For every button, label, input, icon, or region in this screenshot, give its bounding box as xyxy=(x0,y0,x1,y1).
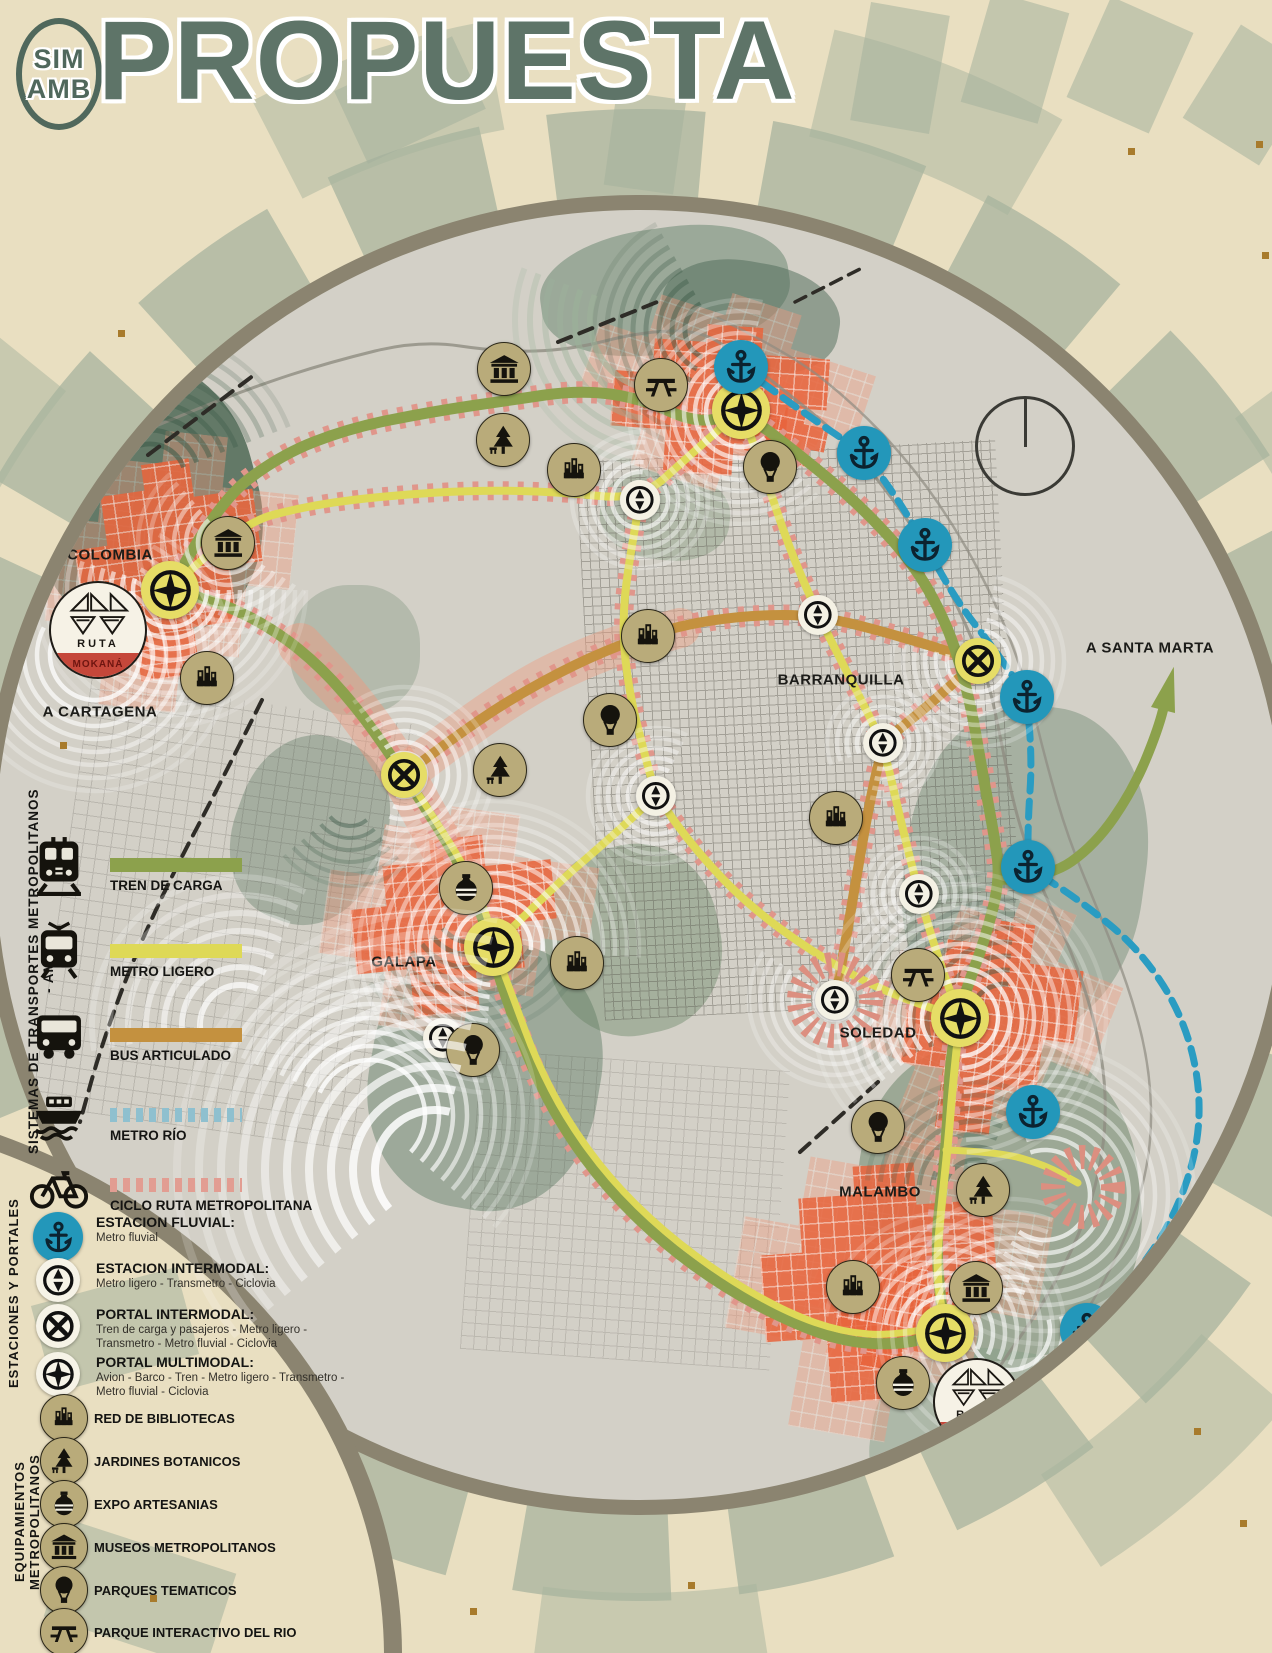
estacion-fluvial-icon xyxy=(1008,847,1048,887)
city-label: GALAPA xyxy=(371,954,436,971)
balloon-icon xyxy=(859,1108,897,1146)
mokana-pattern-icon xyxy=(61,591,134,640)
city-label: A SANTA MARTA xyxy=(1086,640,1214,657)
mokana-mokana-text: MOKANÁ xyxy=(73,659,124,670)
estacion-intermodal-marker xyxy=(620,480,660,520)
vase-icon xyxy=(447,869,485,907)
expo-marker xyxy=(439,861,493,915)
books-icon xyxy=(558,944,596,982)
estacion-fluvial-marker xyxy=(1001,840,1055,894)
balloon-marker xyxy=(446,1023,500,1077)
portal-intermodal-icon xyxy=(387,758,421,792)
decorative-dot xyxy=(1194,1428,1201,1435)
estacion-intermodal-marker xyxy=(798,595,838,635)
estacion-fluvial-icon xyxy=(1067,1310,1107,1350)
estacion-fluvial-icon xyxy=(844,433,884,473)
mokana-ruta-text: RUTA xyxy=(956,1410,998,1421)
portal-intermodal-icon xyxy=(961,644,995,678)
biblioteca-marker xyxy=(180,651,234,705)
picnic-icon xyxy=(642,366,680,404)
ruta-mokana-logo: RUTAMOKANÁ xyxy=(933,1358,1021,1446)
sim-amb-logo: SIM AMB xyxy=(16,18,102,130)
portal-multimodal-marker xyxy=(931,989,989,1047)
balloon-marker xyxy=(583,693,637,747)
picnic-icon xyxy=(899,956,937,994)
estacion-intermodal-marker xyxy=(815,980,855,1020)
books-icon xyxy=(555,451,593,489)
books-icon xyxy=(629,617,667,655)
decorative-dot xyxy=(118,330,125,337)
mokana-pattern-icon xyxy=(944,1367,1010,1411)
museo-marker xyxy=(949,1261,1003,1315)
estacion-fluvial-marker xyxy=(837,426,891,480)
portal-multimodal-icon xyxy=(149,569,192,612)
propuesta-poster: PUERTO COLOMBIAA CARTAGENABARRANQUILLAGA… xyxy=(0,0,1272,1653)
books-icon xyxy=(817,799,855,837)
estacion-fluvial-marker xyxy=(1000,670,1054,724)
jardin-marker xyxy=(476,413,530,467)
estacion-fluvial-icon xyxy=(1013,1092,1053,1132)
estacion-fluvial-icon xyxy=(1007,677,1047,717)
logo-bottom-text: AMB xyxy=(27,74,92,104)
museo-marker xyxy=(477,342,531,396)
ruta-mokana-logo: RUTAMOKANÁ xyxy=(49,581,147,679)
estacion-fluvial-icon xyxy=(721,347,761,387)
biblioteca-marker xyxy=(809,791,863,845)
tree-icon xyxy=(481,751,519,789)
books-icon xyxy=(188,659,226,697)
decorative-dot xyxy=(688,1582,695,1589)
estacion-fluvial-marker xyxy=(1006,1085,1060,1139)
estacion-intermodal-marker xyxy=(636,776,676,816)
portal-multimodal-marker xyxy=(464,918,522,976)
picnic-marker xyxy=(634,358,688,412)
museo-marker xyxy=(201,516,255,570)
balloon-marker xyxy=(743,440,797,494)
city-label: A CARTAGENA xyxy=(43,704,158,721)
estacion-intermodal-icon xyxy=(820,985,850,1015)
expo-marker xyxy=(876,1356,930,1410)
jardin-marker xyxy=(473,743,527,797)
biblioteca-marker xyxy=(550,936,604,990)
page-title: PROPUESTA xyxy=(98,0,796,125)
estacion-intermodal-icon xyxy=(803,600,833,630)
balloon-icon xyxy=(454,1031,492,1069)
biblioteca-marker xyxy=(621,609,675,663)
estacion-fluvial-icon xyxy=(905,525,945,565)
estacion-intermodal-marker xyxy=(863,723,903,763)
decorative-dot xyxy=(60,742,67,749)
museum-icon xyxy=(957,1269,995,1307)
mokana-mokana-text: MOKANÁ xyxy=(952,1428,1003,1439)
mokana-ruta-text: RUTA xyxy=(77,639,119,650)
portal-multimodal-marker xyxy=(141,561,199,619)
books-icon xyxy=(834,1268,872,1306)
portal-multimodal-icon xyxy=(720,389,763,432)
portal-multimodal-icon xyxy=(939,997,982,1040)
vase-icon xyxy=(884,1364,922,1402)
jardin-marker xyxy=(956,1163,1010,1217)
north-indicator xyxy=(975,396,1075,496)
vegetation-patch xyxy=(290,585,420,715)
estacion-intermodal-icon xyxy=(625,485,655,515)
balloon-marker xyxy=(851,1100,905,1154)
city-label: BARRANQUILLA xyxy=(778,672,905,689)
tree-icon xyxy=(964,1171,1002,1209)
city-label: PUERTO COLOMBIA xyxy=(0,547,153,564)
mokana-band: MOKANÁ xyxy=(935,1422,1019,1444)
museum-icon xyxy=(209,524,247,562)
sage-wedge xyxy=(1067,0,1194,134)
city-label: SOLEDAD xyxy=(840,1025,917,1042)
portal-intermodal-marker xyxy=(955,638,1001,684)
museum-icon xyxy=(485,350,523,388)
estacion-fluvial-marker xyxy=(714,340,768,394)
estacion-intermodal-icon xyxy=(641,781,671,811)
estacion-intermodal-marker xyxy=(899,874,939,914)
sage-wedge xyxy=(961,0,1070,124)
estacion-intermodal-icon xyxy=(904,879,934,909)
sage-wedge xyxy=(850,2,950,134)
decorative-dot xyxy=(150,1595,157,1602)
biblioteca-marker xyxy=(547,443,601,497)
decorative-dot xyxy=(470,1608,477,1615)
logo-top-text: SIM xyxy=(33,44,84,74)
biblioteca-marker xyxy=(826,1260,880,1314)
tree-icon xyxy=(484,421,522,459)
picnic-marker xyxy=(891,948,945,1002)
decorative-dot xyxy=(1240,1520,1247,1527)
balloon-icon xyxy=(591,701,629,739)
decorative-dot xyxy=(1256,141,1263,148)
portal-multimodal-icon xyxy=(924,1312,967,1355)
city-label: MALAMBO xyxy=(839,1184,921,1201)
estacion-fluvial-marker xyxy=(1060,1303,1114,1357)
estacion-fluvial-marker xyxy=(898,518,952,572)
decorative-dot xyxy=(1128,148,1135,155)
mokana-band: MOKANÁ xyxy=(51,653,145,677)
estacion-intermodal-icon xyxy=(868,728,898,758)
balloon-icon xyxy=(751,448,789,486)
portal-intermodal-marker xyxy=(381,752,427,798)
decorative-dot xyxy=(1262,252,1269,259)
portal-multimodal-icon xyxy=(472,926,515,969)
